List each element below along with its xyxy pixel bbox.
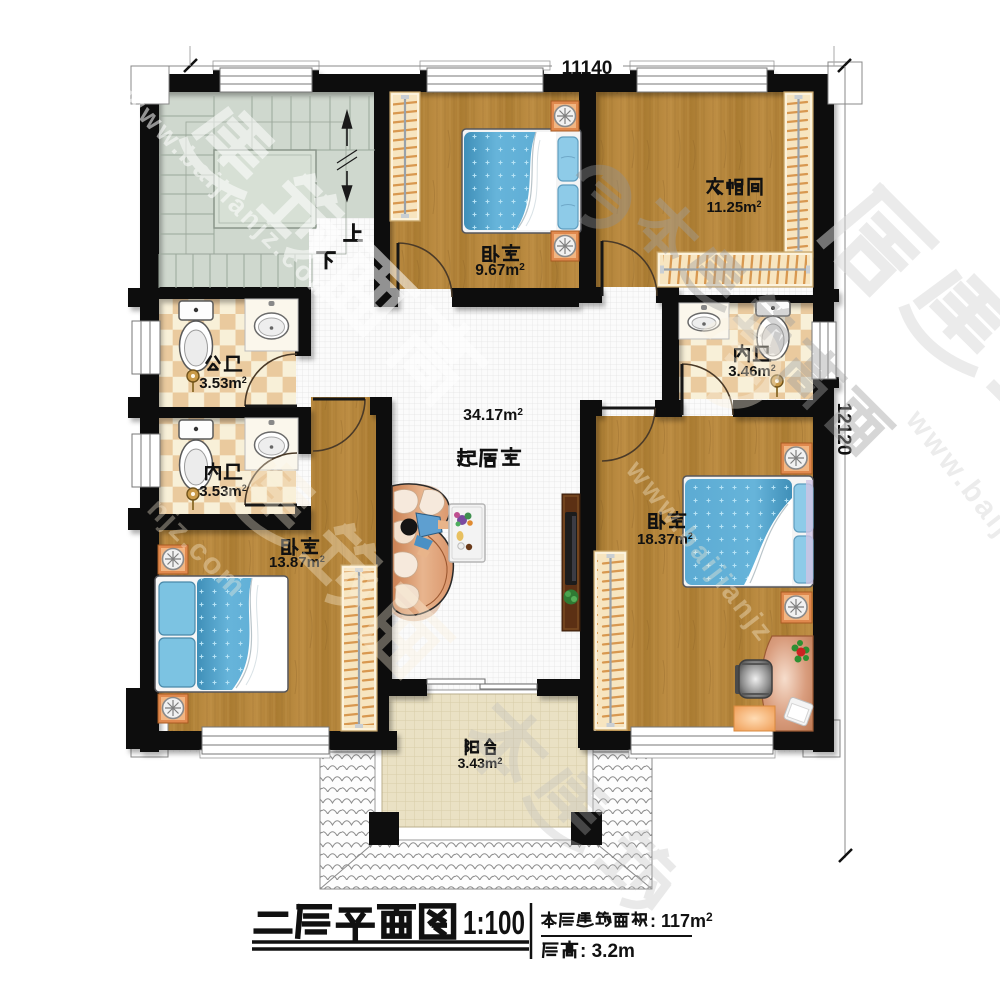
svg-text:9.67m2: 9.67m2 [475, 262, 525, 279]
svg-text:3.53m2: 3.53m2 [199, 375, 247, 392]
svg-text:11.25m2: 11.25m2 [706, 199, 761, 216]
svg-text:11140: 11140 [562, 58, 613, 79]
svg-text:: 117m2: : 117m2 [650, 910, 713, 931]
svg-text:34.17m2: 34.17m2 [463, 407, 523, 424]
svg-text:1:100: 1:100 [463, 904, 525, 941]
svg-text:: 3.2m: : 3.2m [580, 941, 635, 962]
